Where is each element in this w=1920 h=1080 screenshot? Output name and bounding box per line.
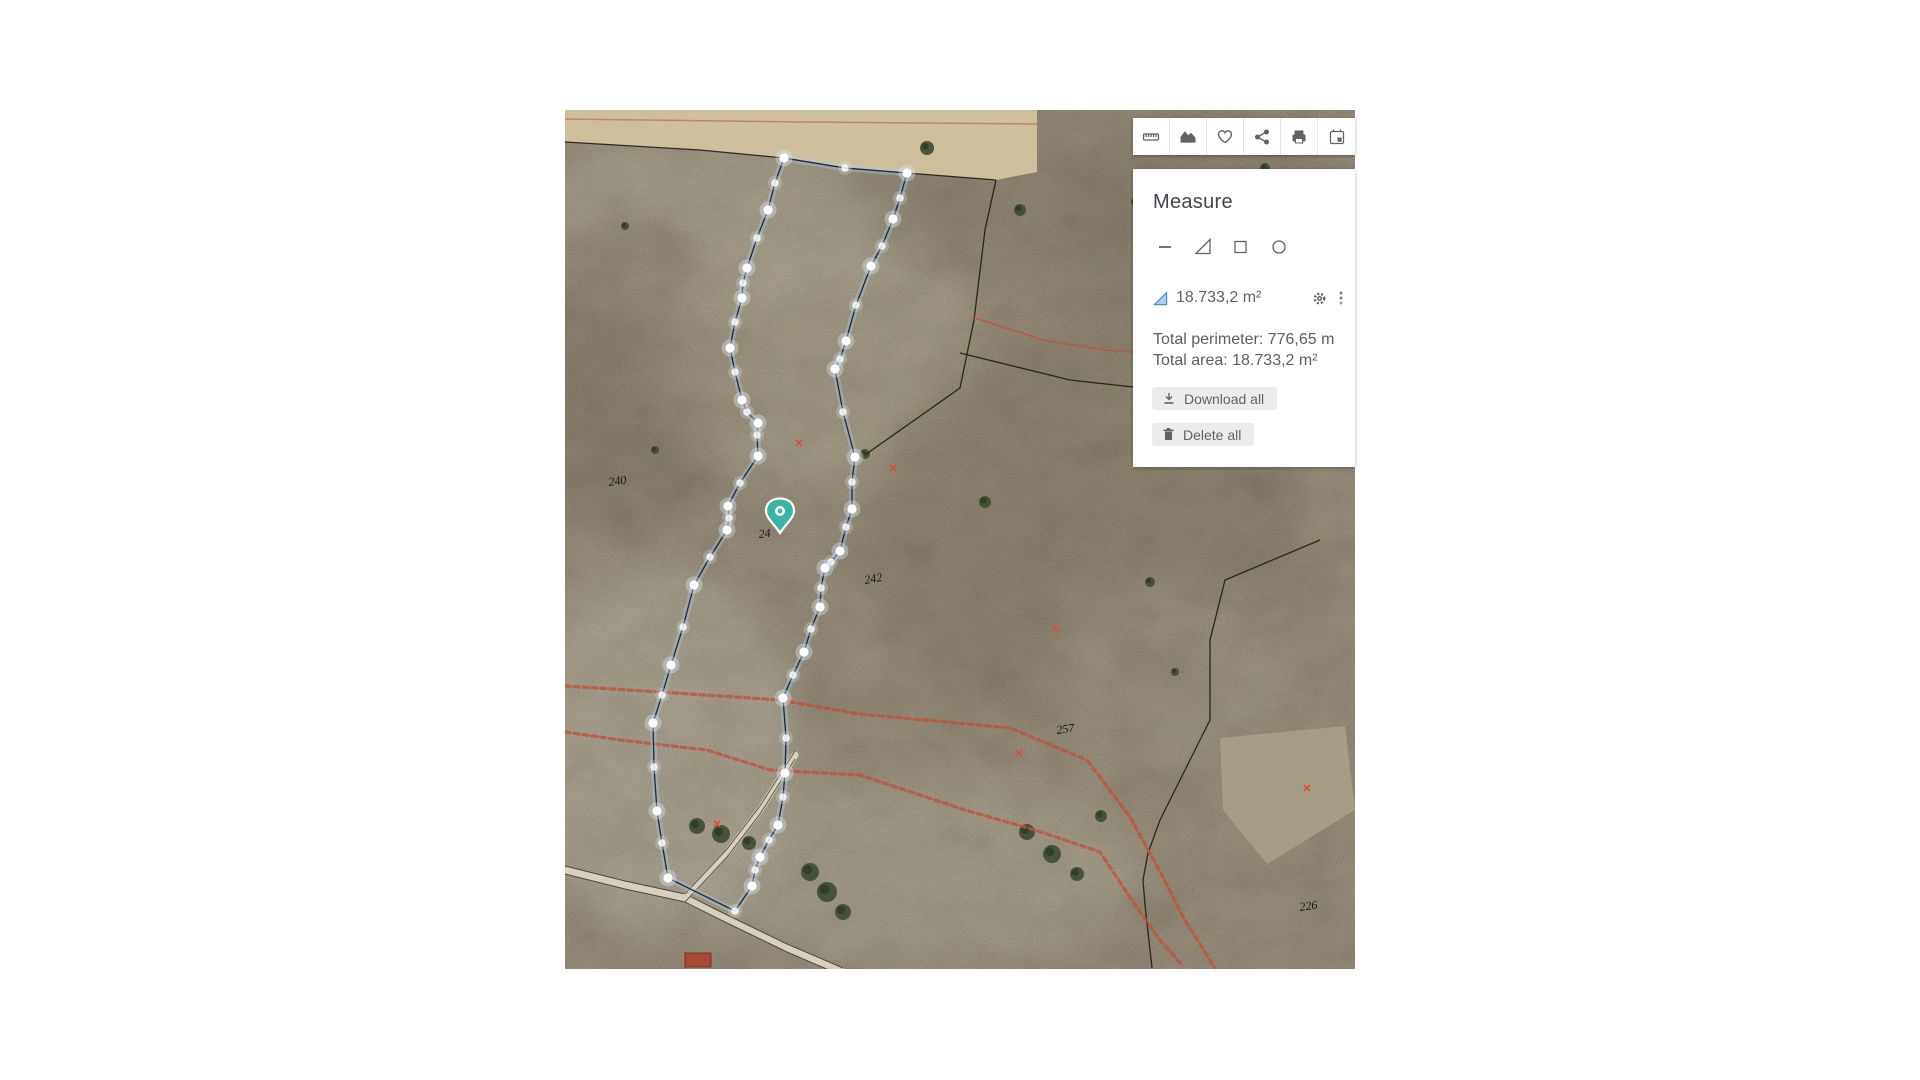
svg-text:257: 257 [1055,720,1076,737]
ruler-icon [1142,128,1160,146]
tool-area-triangle-button[interactable] [1191,235,1215,259]
total-area: Total area: 18.733,2 m² [1153,350,1335,371]
delete-all-button[interactable]: Delete all [1152,423,1254,446]
svg-text:226: 226 [1298,898,1318,914]
print-button[interactable] [1281,118,1318,155]
ruler-button[interactable] [1133,118,1170,155]
calendar-event-button[interactable] [1318,118,1355,155]
panel-title: Measure [1153,191,1355,213]
calendar-event-icon [1328,128,1346,146]
elevation-chart-button[interactable] [1170,118,1207,155]
measure-panel: Measure 18.733,2 m² Total perimeter: 776… [1133,169,1355,467]
building-footprints [685,953,711,967]
tool-rectangle-icon [1232,238,1250,256]
download-all-label: Download all [1184,391,1264,407]
tool-line-button[interactable] [1153,235,1177,259]
tool-circle-icon [1270,238,1288,256]
download-all-button[interactable]: Download all [1152,387,1277,410]
gear-icon[interactable] [1309,288,1329,308]
share-button[interactable] [1244,118,1281,155]
tool-line-icon [1156,238,1174,256]
elevation-chart-icon [1179,128,1197,146]
share-icon [1253,128,1271,146]
total-perimeter: Total perimeter: 776,65 m [1153,329,1335,350]
download-icon [1163,392,1175,405]
tool-rectangle-button[interactable] [1229,235,1253,259]
tool-circle-button[interactable] [1267,235,1291,259]
measurement-list-item[interactable]: 18.733,2 m² [1153,286,1347,310]
totals-block: Total perimeter: 776,65 m Total area: 18… [1153,329,1335,371]
delete-all-label: Delete all [1183,427,1241,443]
favorite-heart-button[interactable] [1207,118,1244,155]
map-toolbar [1133,118,1355,155]
measure-tools-row [1153,235,1355,259]
svg-text:24: 24 [758,526,771,541]
area-measurement-icon [1153,291,1168,306]
print-icon [1290,128,1308,146]
trash-icon [1163,428,1174,441]
favorite-heart-icon [1216,128,1234,146]
svg-text:240: 240 [607,473,627,489]
tool-area-triangle-icon [1194,238,1212,256]
kebab-menu-icon[interactable] [1335,288,1347,308]
measurement-value: 18.733,2 m² [1176,289,1261,307]
